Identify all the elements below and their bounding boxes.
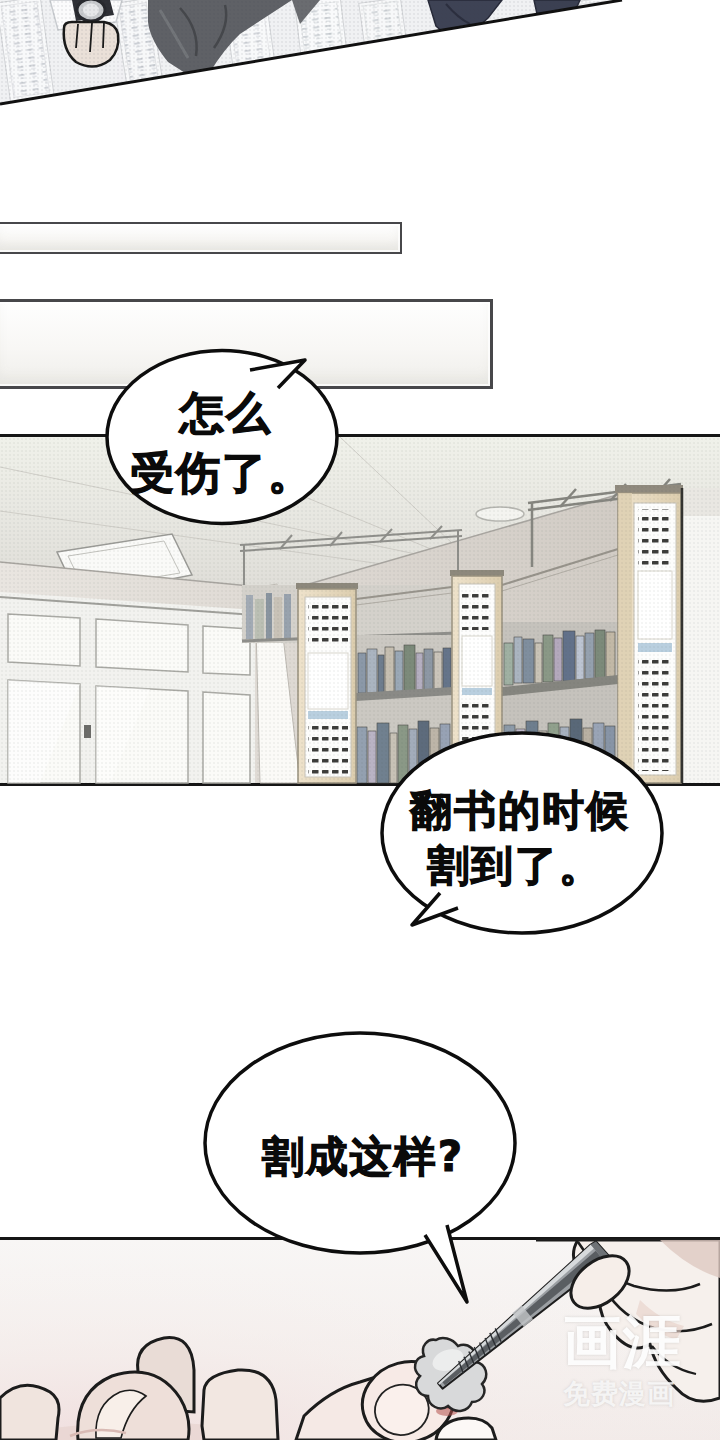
speech-bubble-2: 翻书的时候 割到了。 — [375, 725, 675, 975]
watermark-logo: 画涯 — [563, 1312, 720, 1373]
bubble-2-line-2: 割到了。 — [427, 841, 603, 890]
books-row — [358, 645, 451, 693]
bubble-1-line-1: 怎么 — [178, 387, 272, 438]
window-wall — [0, 592, 255, 783]
window-pane — [96, 619, 188, 672]
bubble-1-line-2: 受伤了。 — [130, 447, 314, 498]
bubble-2-line-1: 翻书的时候 — [409, 786, 630, 835]
bubble-3-line-1: 割成这样? — [262, 1132, 464, 1181]
watermark: 画涯 免费漫画 — [563, 1312, 720, 1408]
speech-bubble-3: 割成这样? — [195, 1025, 525, 1315]
top-panel — [0, 0, 720, 110]
watermark-tagline: 免费漫画 — [563, 1380, 720, 1408]
window-latch — [84, 725, 91, 738]
speech-bubble-1: 怎么 受伤了。 — [90, 340, 360, 540]
narration-box-1 — [0, 222, 402, 254]
window-pane — [8, 614, 80, 666]
books-row — [504, 630, 615, 685]
right-wall-strip — [682, 488, 720, 783]
window-pane — [203, 692, 250, 783]
bubble-3-tail — [425, 1225, 467, 1302]
shelf-end-panel — [296, 583, 358, 783]
